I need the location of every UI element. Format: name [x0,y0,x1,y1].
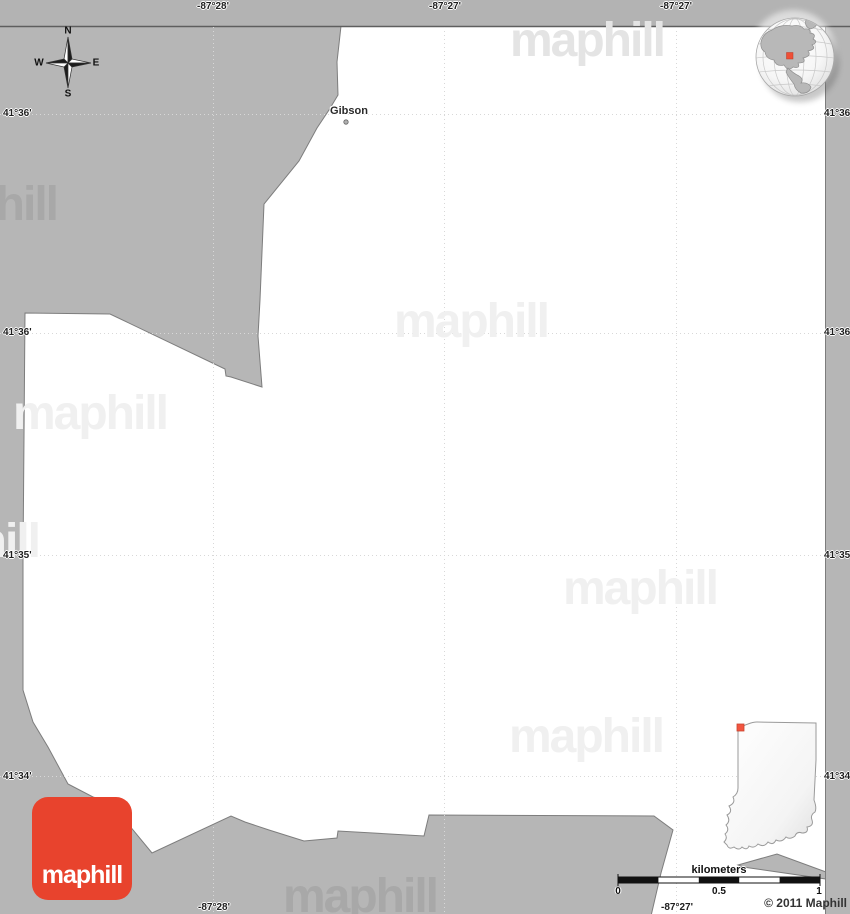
lat-label-left-3: 41°34' [3,771,32,782]
place-label-gibson: Gibson [330,105,368,117]
indiana-location-marker [737,724,744,731]
lat-label-right-1: 41°36' [824,327,850,338]
maphill-logo[interactable]: maphill [32,797,132,900]
scale-tick-0: 0 [615,886,621,897]
indiana-state-inset[interactable] [724,722,816,849]
globe-location-marker [787,53,794,60]
compass-north-label: N [64,26,71,37]
scale-tick-0-5: 0.5 [712,886,726,897]
scale-unit-label: kilometers [691,864,746,876]
lat-label-right-2: 41°35' [824,550,850,561]
lon-label-bottom-0: -87°28' [198,902,230,913]
map-canvas[interactable]: maphill maphill maphill maphill maphill … [0,0,850,914]
lat-label-left-1: 41°36' [3,327,32,338]
top-margin-band [0,0,850,26]
copyright-notice[interactable]: © 2011 Maphill [764,896,847,910]
lon-label-bottom-1: -87°27' [661,902,693,913]
lon-label-top-2: -87°27' [660,1,692,12]
lon-label-top-1: -87°27' [429,1,461,12]
lat-label-right-0: 41°36' [824,108,850,119]
compass-west-label: W [34,58,43,69]
lat-label-left-0: 41°36' [3,108,32,119]
lat-label-left-2: 41°35' [3,550,32,561]
gibson-dot [344,120,348,124]
compass-east-label: E [93,58,100,69]
map-graphic [0,0,850,914]
indiana-outline [724,722,816,849]
lon-label-top-0: -87°28' [197,1,229,12]
maphill-logo-text: maphill [32,861,132,890]
lat-label-right-3: 41°34' [824,771,850,782]
compass-south-label: S [65,89,72,100]
